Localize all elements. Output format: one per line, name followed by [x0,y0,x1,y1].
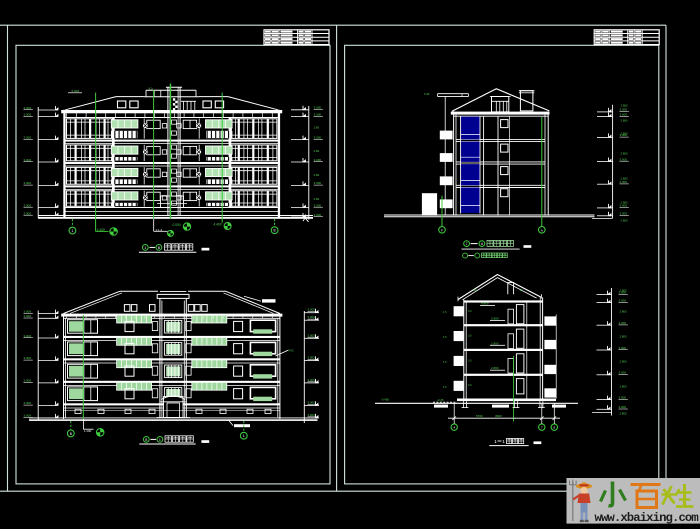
svg-text:3.000: 3.000 [24,158,32,162]
svg-text:3.000: 3.000 [24,211,32,215]
svg-text:3.000: 3.000 [314,112,322,116]
svg-text:3.000: 3.000 [24,106,32,110]
svg-text:2.800: 2.800 [491,366,499,370]
svg-text:3.000: 3.000 [308,333,316,337]
svg-text:3.000: 3.000 [24,314,32,318]
svg-text:3.000: 3.000 [620,180,628,184]
svg-text:3.000: 3.000 [314,106,322,110]
svg-text:9.800: 9.800 [481,302,489,306]
svg-text:2.80: 2.80 [314,126,320,130]
svg-text:1: 1 [502,439,505,444]
svg-text:1.5: 1.5 [443,386,447,389]
svg-text:2.800: 2.800 [621,177,628,181]
svg-text:3.000: 3.000 [314,158,322,162]
svg-text:PVC: PVC [288,349,294,353]
svg-text:3.0: 3.0 [468,335,472,338]
svg-text:1: 1 [72,229,74,233]
svg-text:2.800: 2.800 [621,104,628,108]
svg-text:3.000: 3.000 [24,356,32,360]
svg-text:3.000: 3.000 [620,108,628,112]
svg-text:2.800: 2.800 [491,341,499,345]
svg-text:2.800: 2.800 [621,132,628,136]
svg-text:3.000: 3.000 [620,112,628,116]
svg-text:3.000: 3.000 [314,213,322,217]
svg-text:-0.45: -0.45 [437,398,444,402]
svg-text:3.000: 3.000 [24,414,32,418]
svg-text:1.5: 1.5 [443,361,447,364]
svg-text:3.000: 3.000 [619,321,627,325]
svg-text:3.000: 3.000 [24,135,32,139]
svg-text:1:100: 1:100 [84,429,92,433]
svg-text:2.800: 2.800 [621,219,628,223]
svg-text:3.000: 3.000 [308,413,316,417]
svg-text:2.800: 2.800 [620,289,627,293]
svg-text:2.800: 2.800 [621,152,628,156]
svg-text:www.xbaixing.com: www.xbaixing.com [595,511,699,525]
svg-text:2.800: 2.800 [620,310,627,314]
svg-text:3.000: 3.000 [308,355,316,359]
svg-text:3.000: 3.000 [620,212,628,216]
svg-text:1.5: 1.5 [443,336,447,339]
svg-text:2.800: 2.800 [620,335,627,339]
svg-text:2.80: 2.80 [314,173,320,177]
svg-text:7: 7 [466,242,468,246]
svg-text:3.000: 3.000 [308,378,316,382]
svg-text:3.000: 3.000 [24,401,32,405]
svg-text:4.400: 4.400 [97,228,105,232]
svg-text:3.000: 3.000 [619,298,627,302]
svg-text:2.80: 2.80 [314,197,320,201]
svg-text:B: B [274,229,276,233]
svg-text:2.80: 2.80 [314,149,320,153]
svg-text:2.800: 2.800 [491,317,499,321]
svg-text:3.000: 3.000 [619,395,627,399]
svg-text:3.000: 3.000 [308,315,316,319]
svg-text:30: 30 [474,288,478,292]
svg-text:3.30: 3.30 [424,92,430,96]
svg-text:F: F [441,228,443,232]
svg-text:3.000: 3.000 [24,112,32,116]
svg-text:3.000: 3.000 [24,309,32,313]
svg-text:B: B [145,438,147,442]
svg-text:3.000: 3.000 [620,157,628,161]
svg-text:1: 1 [243,434,245,438]
svg-text:3.000: 3.000 [24,181,32,185]
svg-text:2.800: 2.800 [620,385,627,389]
svg-text:1: 1 [494,439,497,444]
svg-text:2.800: 2.800 [621,119,628,123]
svg-text:6.600: 6.600 [72,89,80,93]
svg-text:2.800: 2.800 [620,360,627,364]
svg-text:3.000: 3.000 [24,379,32,383]
svg-text:9.0: 9.0 [149,87,153,91]
svg-text:3.000: 3.000 [314,135,322,139]
svg-text:1.5: 1.5 [443,311,447,314]
svg-text:3.000: 3.000 [619,405,627,409]
svg-text:3900: 3900 [495,414,502,418]
svg-text:3.000: 3.000 [314,181,322,185]
svg-text:1: 1 [144,246,146,250]
svg-text:3.0: 3.0 [468,359,472,362]
svg-text:3.000: 3.000 [308,308,316,312]
svg-text:3.0: 3.0 [468,384,472,387]
svg-text:0.000: 0.000 [173,223,181,227]
svg-text:3.000: 3.000 [24,203,32,207]
svg-text:3.0: 3.0 [468,310,472,313]
svg-text:2.800: 2.800 [620,412,627,416]
svg-text:B: B [70,432,72,436]
svg-text:4.400: 4.400 [214,222,222,226]
svg-text:A: A [541,228,543,232]
svg-text:3.000: 3.000 [314,203,322,207]
svg-text:30: 30 [520,288,524,292]
svg-text:2.800: 2.800 [621,201,628,205]
svg-text:5700: 5700 [476,414,483,418]
svg-text:3.000: 3.000 [619,371,627,375]
svg-text:-0.450: -0.450 [381,398,389,402]
svg-text:3.000: 3.000 [24,334,32,338]
svg-text:1:1.2: 1:1.2 [156,228,163,232]
svg-text:3.000: 3.000 [619,346,627,350]
svg-text:1: 1 [159,438,161,442]
svg-text:3.000: 3.000 [308,400,316,404]
